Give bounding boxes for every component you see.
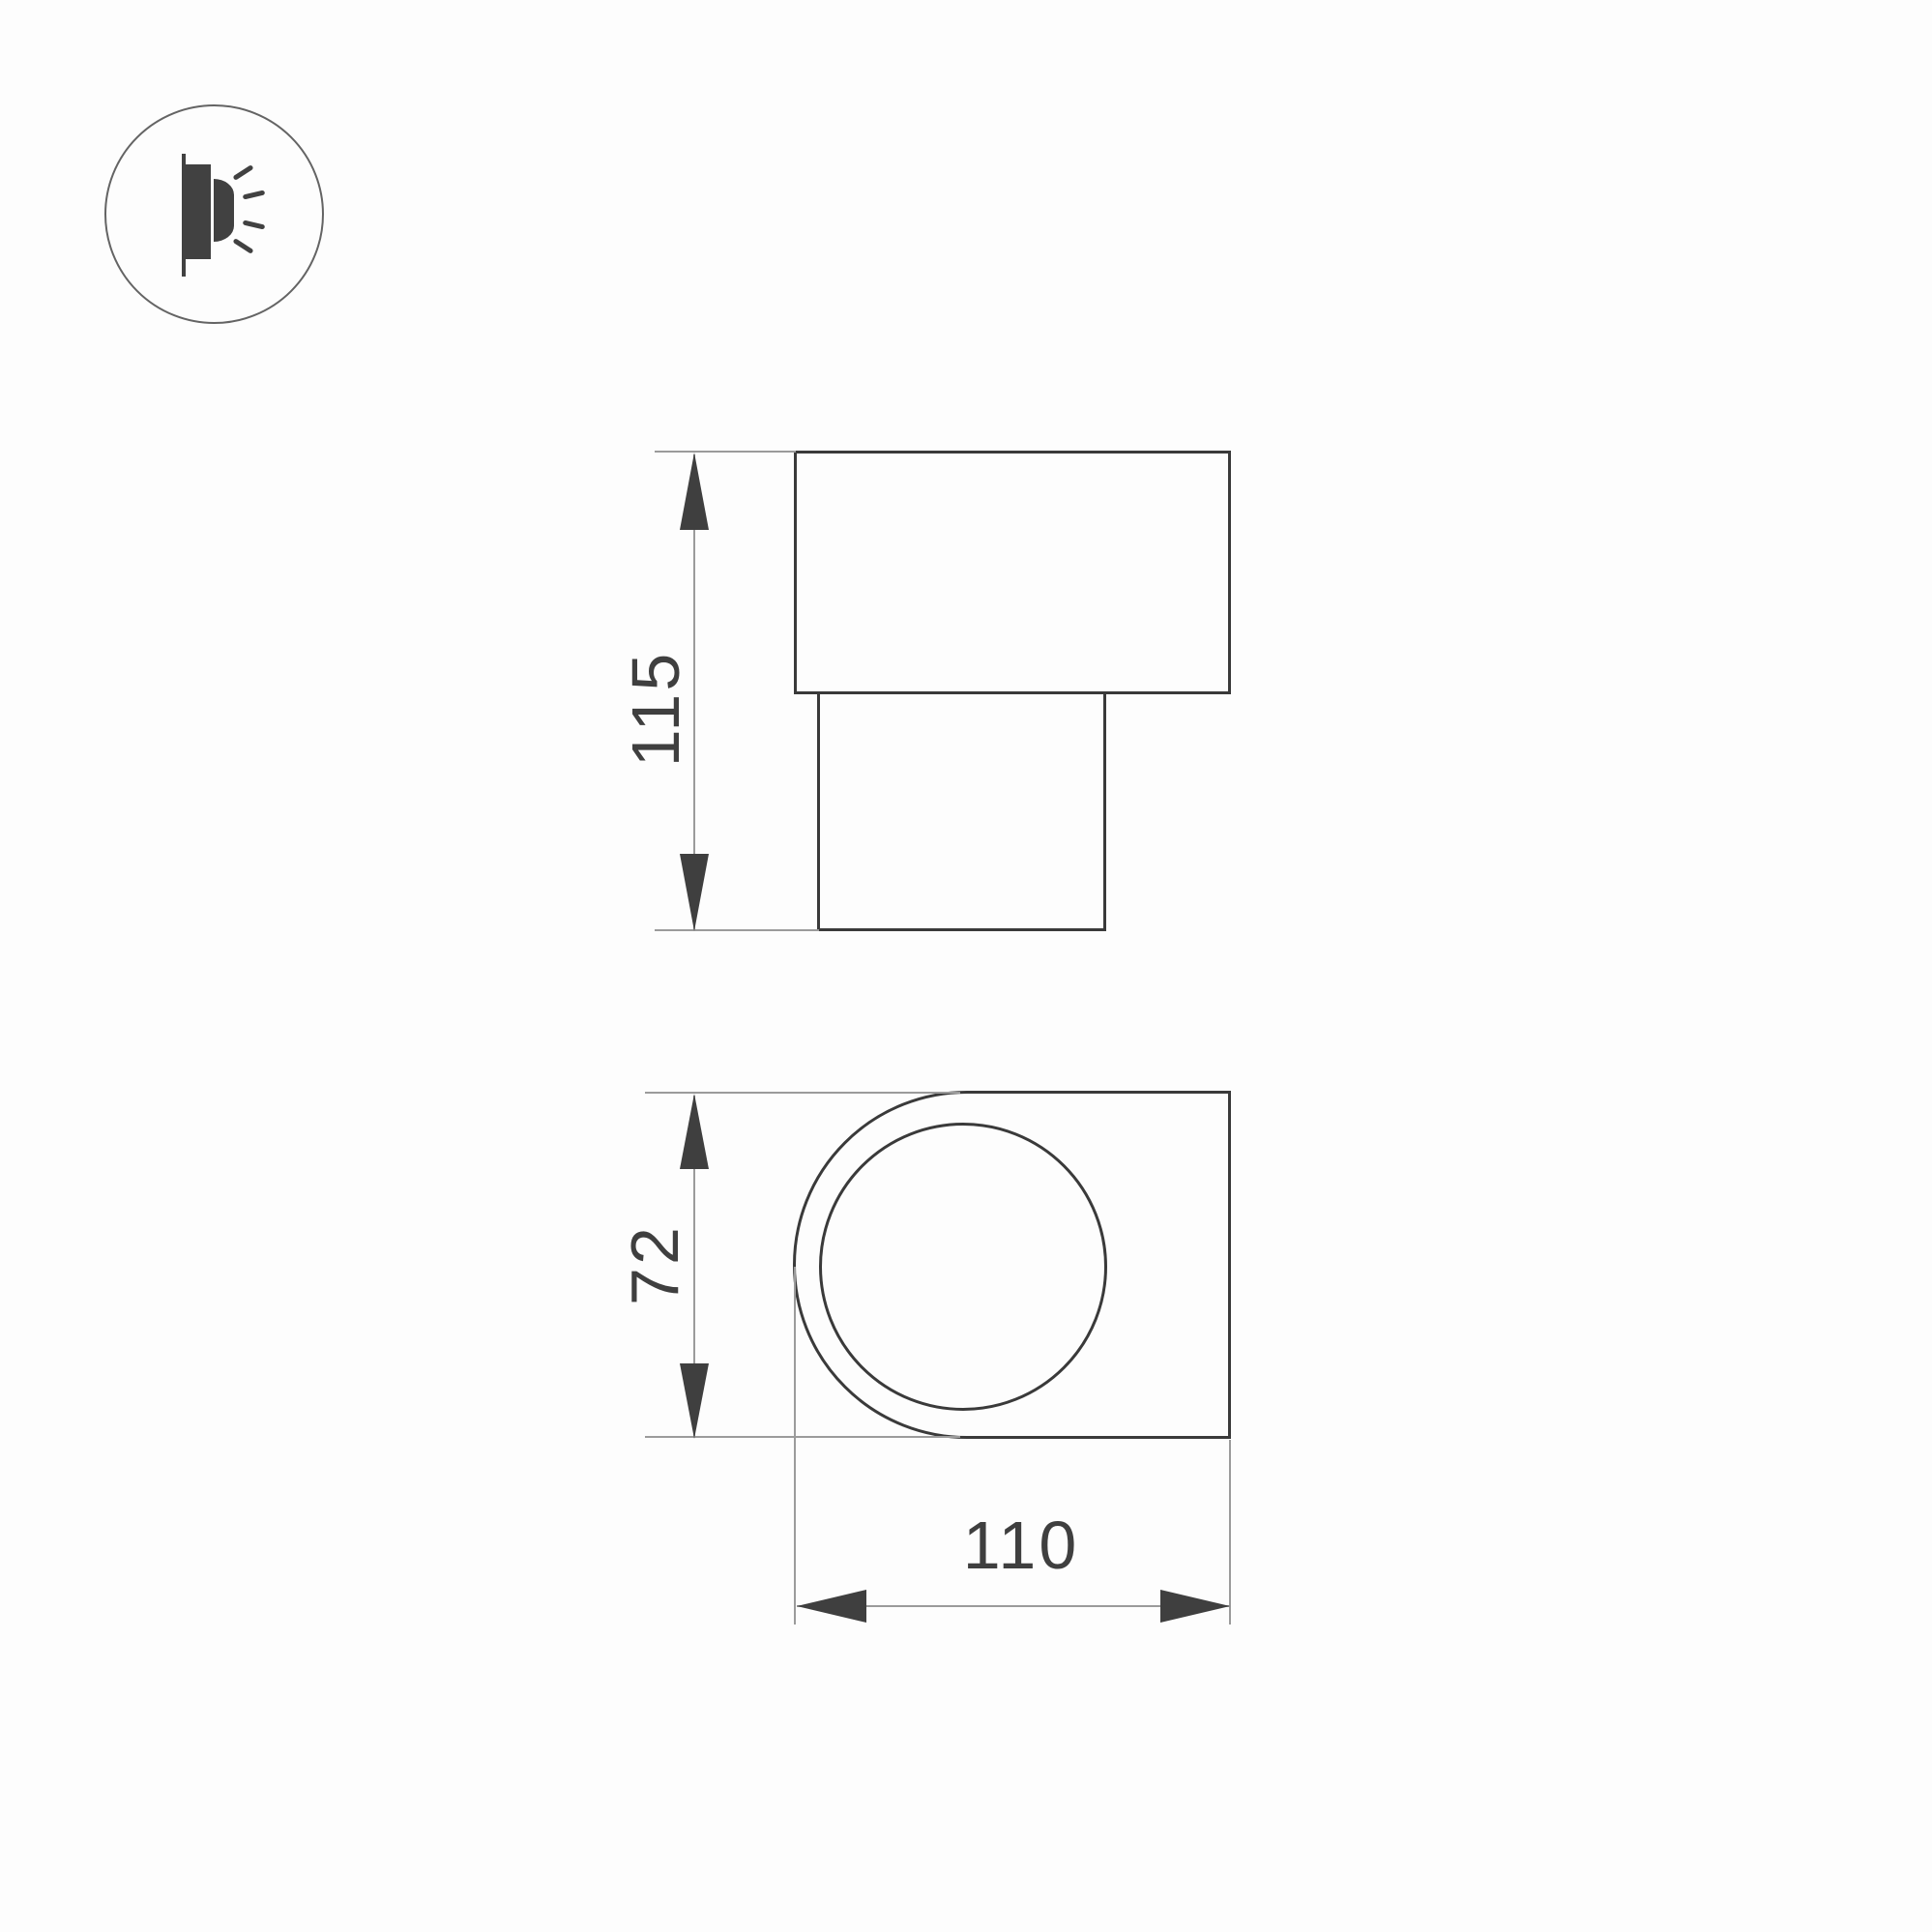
lamp-front-lens-circle xyxy=(819,1123,1107,1411)
lamp-lens-icon xyxy=(214,179,234,242)
lamp-body-icon xyxy=(184,164,211,259)
extension-line-left xyxy=(794,1267,796,1625)
arrowhead-down-icon xyxy=(680,1363,709,1439)
lamp-head-rectangle xyxy=(794,451,1231,694)
dimension-label-110: 110 xyxy=(963,1511,1080,1579)
technical-drawing-canvas: 115 72 110 xyxy=(0,0,1932,1932)
dimension-label-72: 72 xyxy=(621,1224,688,1305)
arrowhead-up-icon xyxy=(680,1094,709,1169)
arrowhead-down-icon xyxy=(680,854,709,931)
arrowhead-left-icon xyxy=(797,1590,866,1623)
extension-line-top xyxy=(655,451,796,453)
arrowhead-right-icon xyxy=(1160,1590,1230,1623)
dimension-label-115: 115 xyxy=(622,651,689,768)
arrowhead-up-icon xyxy=(680,453,709,530)
lamp-base-rectangle xyxy=(817,694,1106,931)
